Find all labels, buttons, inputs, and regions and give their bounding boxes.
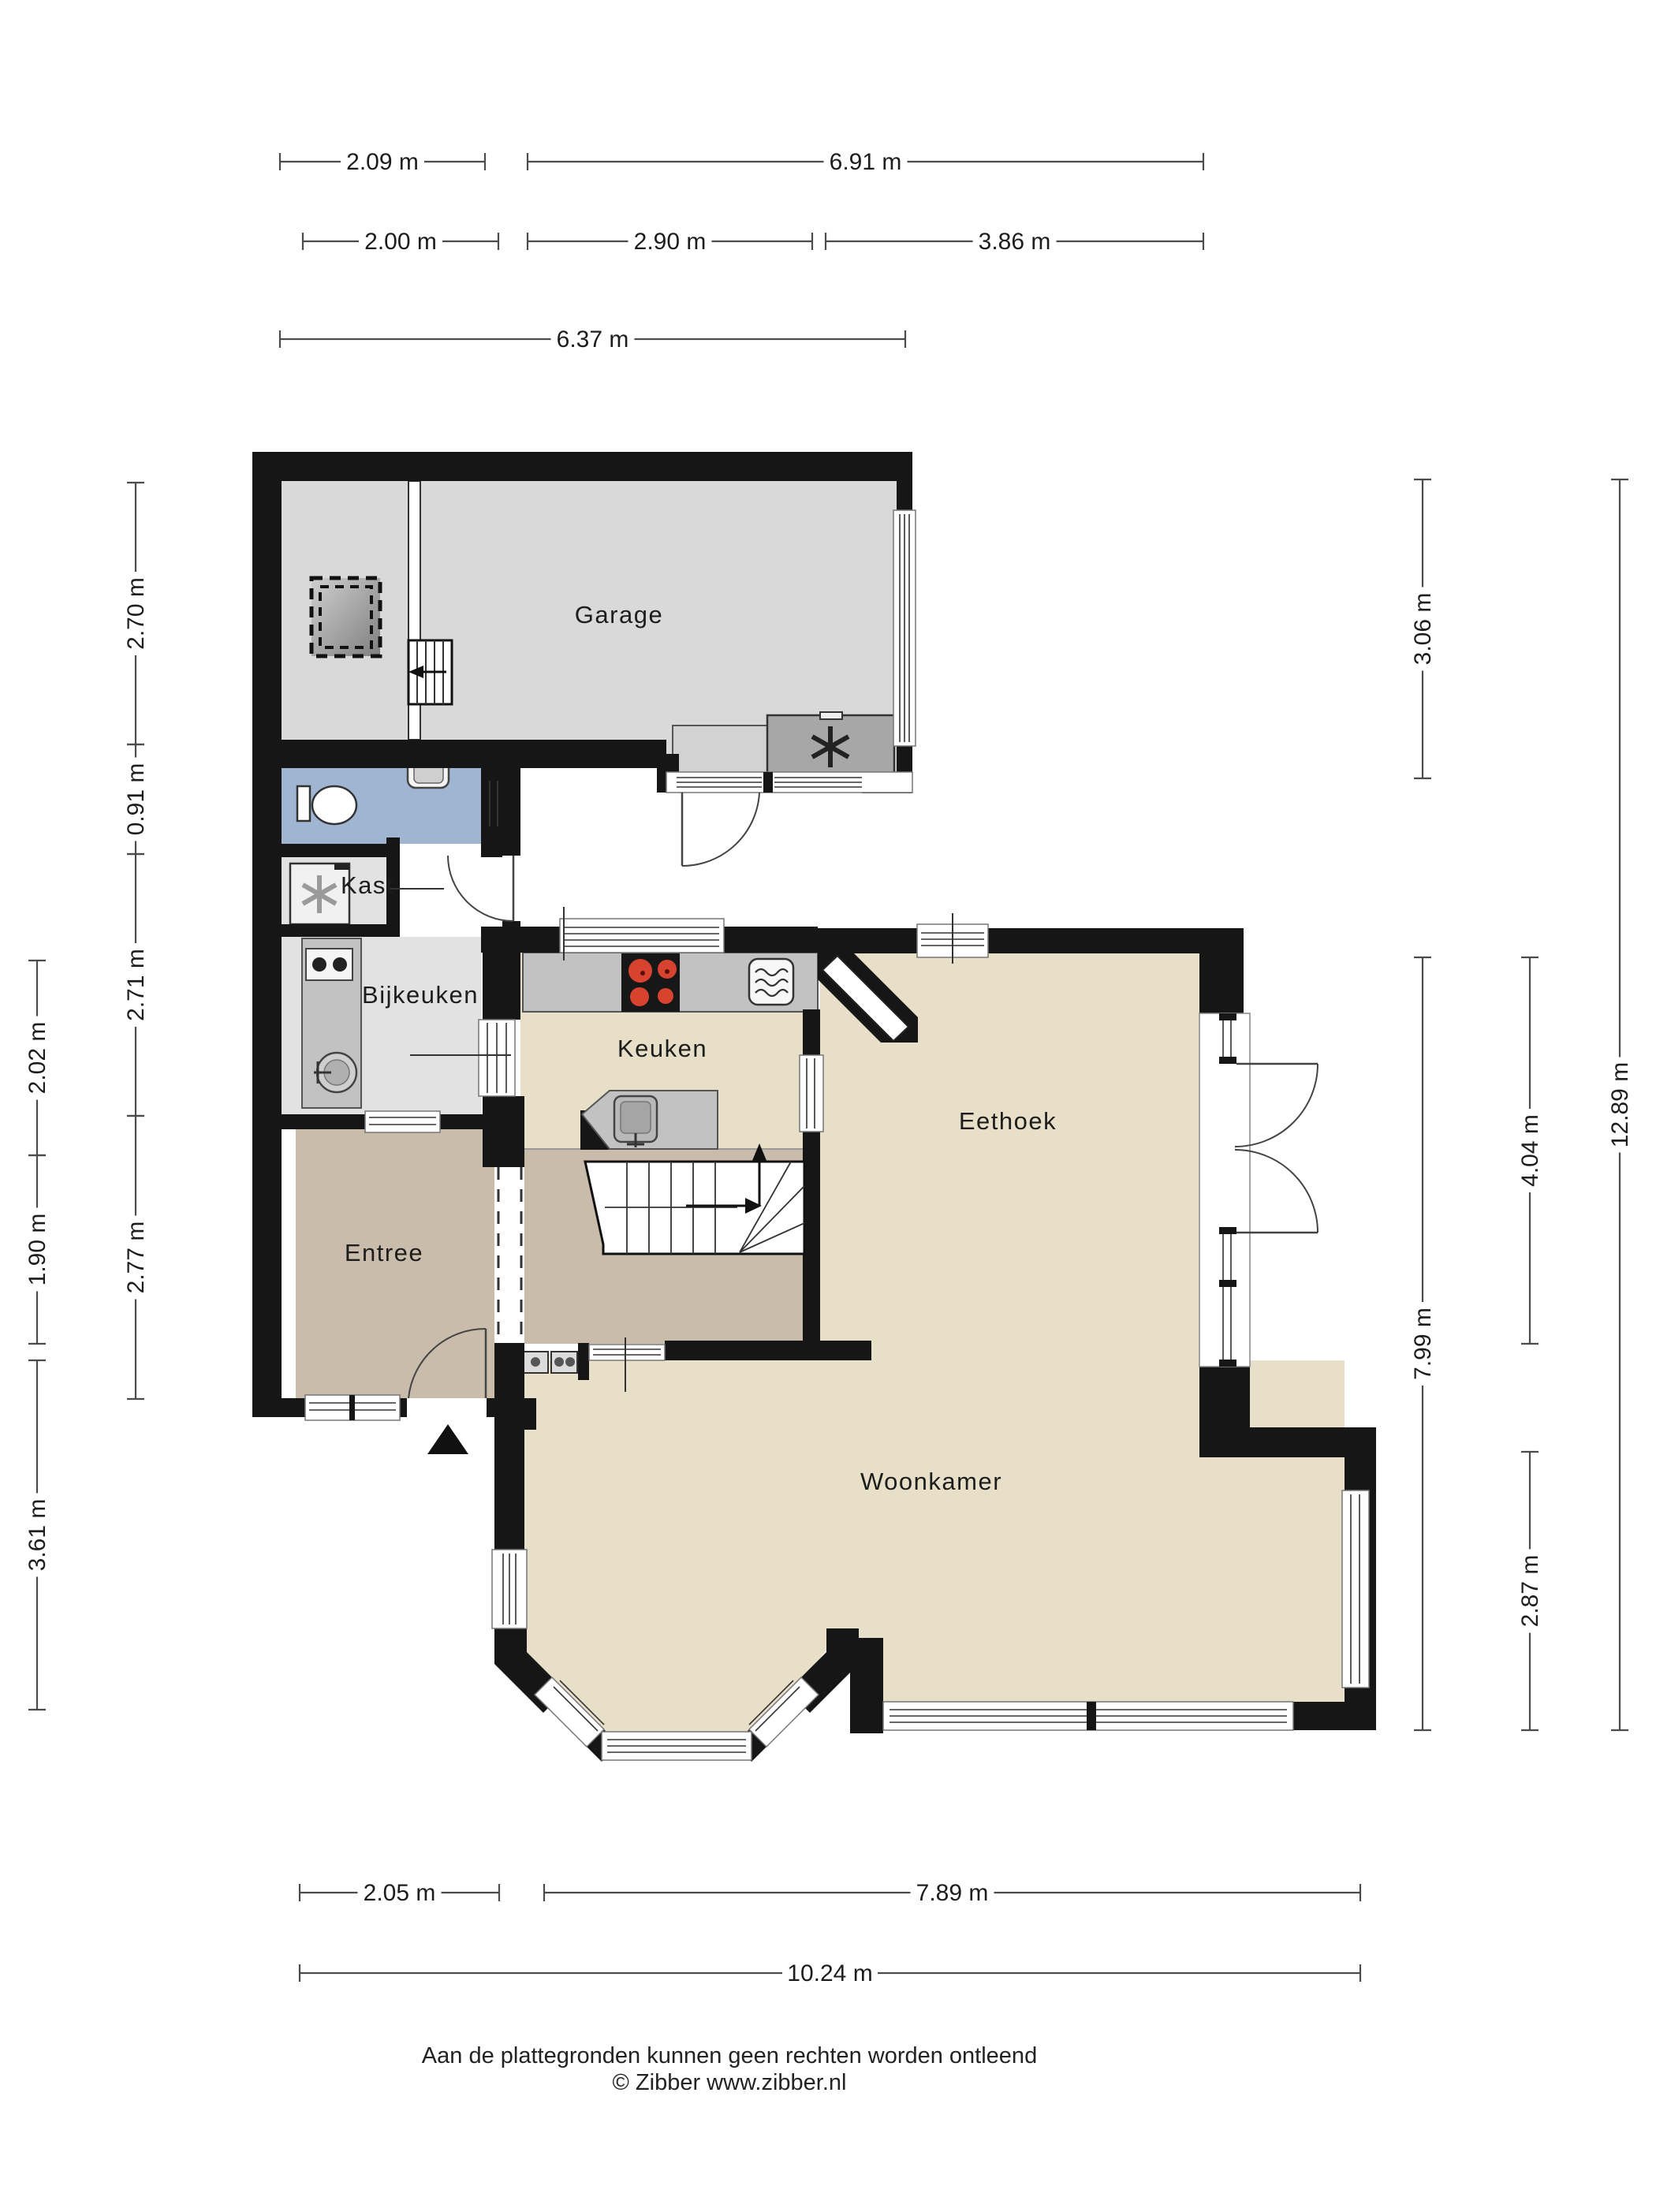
window-divider <box>1087 1702 1096 1730</box>
eethoek-ne-corner <box>1199 928 1244 1013</box>
room-label-eethoek: Eethoek <box>959 1107 1057 1135</box>
dimension: 2.70 m <box>120 483 151 744</box>
radiator-dial <box>565 1357 575 1367</box>
svg-text:3.06 m: 3.06 m <box>1410 593 1436 666</box>
eethoek-east-glazing <box>1199 1013 1250 1367</box>
floorplan-drawing: GarageKastBijkeukenKeukenEethoekEntreeWo… <box>0 0 1656 2208</box>
footer-disclaimer: Aan de plattegronden kunnen geen rechten… <box>422 2043 1037 2068</box>
room-label-kast: Kast <box>341 871 394 899</box>
woonkamer-south-post <box>850 1666 883 1733</box>
svg-text:3.86 m: 3.86 m <box>979 229 1051 255</box>
svg-text:2.77 m: 2.77 m <box>123 1222 149 1294</box>
keuken-sink-basin <box>621 1102 651 1133</box>
dimension: 4.04 m <box>1514 957 1546 1344</box>
bijkeuken-south-window <box>365 1111 440 1132</box>
radiator-dial <box>531 1357 540 1367</box>
svg-text:4.04 m: 4.04 m <box>1517 1114 1543 1187</box>
keuken-eethoek-window <box>800 1055 823 1132</box>
footer-text: Aan de plattegronden kunnen geen rechten… <box>422 2043 1037 2095</box>
cooktop-burner <box>628 959 652 983</box>
room-label-keuken: Keuken <box>617 1035 707 1062</box>
svg-text:3.61 m: 3.61 m <box>24 1499 50 1572</box>
svg-text:10.24 m: 10.24 m <box>787 1960 872 1986</box>
dimension: 12.89 m <box>1604 479 1635 1730</box>
hall-east-wall-top <box>502 768 520 856</box>
dimension: 2.87 m <box>1514 1452 1546 1730</box>
hall-south-post <box>578 1343 589 1380</box>
dimension: 7.99 m <box>1407 957 1438 1730</box>
dimension: 6.37 m <box>280 323 905 355</box>
dimension: 2.05 m <box>300 1877 499 1908</box>
keuken-north-window <box>560 919 724 953</box>
dimension: 2.02 m <box>21 961 53 1155</box>
svg-text:12.89 m: 12.89 m <box>1607 1062 1633 1147</box>
woonkamer-south-wall-west <box>828 1638 883 1666</box>
dimension: 10.24 m <box>300 1957 1360 1989</box>
dimension: 2.77 m <box>120 1116 151 1399</box>
svg-text:2.09 m: 2.09 m <box>346 149 419 175</box>
gas-burner <box>333 957 347 972</box>
svg-text:0.91 m: 0.91 m <box>123 763 149 836</box>
eethoek-north-wall <box>818 928 1199 953</box>
gas-burner <box>312 957 326 972</box>
radiator-dial <box>554 1357 564 1367</box>
washer-notch <box>820 712 842 719</box>
window-divider <box>763 772 773 793</box>
room-label-bijkeuken: Bijkeuken <box>362 981 479 1009</box>
dimension: 2.09 m <box>280 146 485 177</box>
front-door-opening <box>407 1398 487 1417</box>
svg-text:2.90 m: 2.90 m <box>634 229 707 255</box>
eethoek-east-wall-bottom <box>1199 1367 1250 1427</box>
svg-text:2.00 m: 2.00 m <box>364 229 437 255</box>
woonkamer-east-window <box>1342 1490 1369 1688</box>
kast-appliance-notch <box>334 864 349 870</box>
garage-pit <box>311 578 380 656</box>
room-label-woonkamer: Woonkamer <box>860 1468 1002 1495</box>
entree-east-wall-top <box>494 1129 524 1167</box>
window-divider <box>349 1395 355 1420</box>
toilet-east-wall <box>481 754 502 857</box>
dimension: 7.89 m <box>544 1877 1360 1908</box>
dimension: 0.91 m <box>120 744 151 854</box>
garage-south-wall-west <box>252 740 666 768</box>
west-outer-wall <box>252 452 282 1417</box>
entrance-marker-triangle <box>427 1424 468 1454</box>
dimension: 2.00 m <box>303 226 498 257</box>
garage-north-wall <box>252 452 912 481</box>
entree-east-wall-bottom <box>494 1343 524 1398</box>
toilet-cistern <box>297 786 310 821</box>
toilet-south-wall <box>282 844 400 857</box>
svg-text:7.89 m: 7.89 m <box>916 1880 989 1906</box>
garage-east-wall-top <box>897 481 912 514</box>
keuken-east-wall-top <box>803 1009 820 1055</box>
keuken-west-wall-top <box>483 953 520 1020</box>
svg-text:7.99 m: 7.99 m <box>1410 1307 1436 1380</box>
svg-text:2.71 m: 2.71 m <box>123 949 149 1021</box>
entree-se-corner <box>494 1398 536 1430</box>
svg-text:2.02 m: 2.02 m <box>24 1022 50 1095</box>
hall-woonkamer-window <box>589 1345 665 1360</box>
back-door-swing <box>448 856 513 921</box>
dimension: 2.90 m <box>528 226 812 257</box>
woonkamer-west-wall <box>494 1430 524 1550</box>
burner-dot <box>640 971 645 975</box>
svg-text:2.87 m: 2.87 m <box>1517 1555 1543 1628</box>
footer-copyright: © Zibber www.zibber.nl <box>613 2070 847 2095</box>
svg-text:6.91 m: 6.91 m <box>830 149 902 175</box>
svg-text:6.37 m: 6.37 m <box>557 326 629 353</box>
step-out-wall <box>1199 1427 1376 1457</box>
woonkamer-se-corner <box>1293 1702 1376 1730</box>
dimension: 3.06 m <box>1407 479 1438 778</box>
svg-text:2.05 m: 2.05 m <box>364 1880 436 1906</box>
room-label-entree: Entree <box>345 1239 423 1266</box>
svg-text:2.70 m: 2.70 m <box>123 577 149 650</box>
dimension: 6.91 m <box>528 146 1203 177</box>
hall-woonkamer-wall <box>665 1341 871 1360</box>
toilet-bowl <box>312 786 356 824</box>
dimension: 3.86 m <box>826 226 1203 257</box>
garage-door-swing <box>682 793 759 866</box>
dimension: 1.90 m <box>21 1155 53 1344</box>
svg-text:1.90 m: 1.90 m <box>24 1214 50 1286</box>
dimension: 2.71 m <box>120 854 151 1116</box>
floorplan-page: GarageKastBijkeukenKeukenEethoekEntreeWo… <box>0 0 1656 2208</box>
burner-dot <box>665 969 669 974</box>
cooktop-burner <box>630 987 649 1006</box>
cooktop-burner <box>658 988 673 1004</box>
room-label-garage: Garage <box>575 601 663 629</box>
kast-south-wall <box>282 924 400 937</box>
dimension: 3.61 m <box>21 1360 53 1710</box>
garage-cabinet <box>673 726 767 778</box>
